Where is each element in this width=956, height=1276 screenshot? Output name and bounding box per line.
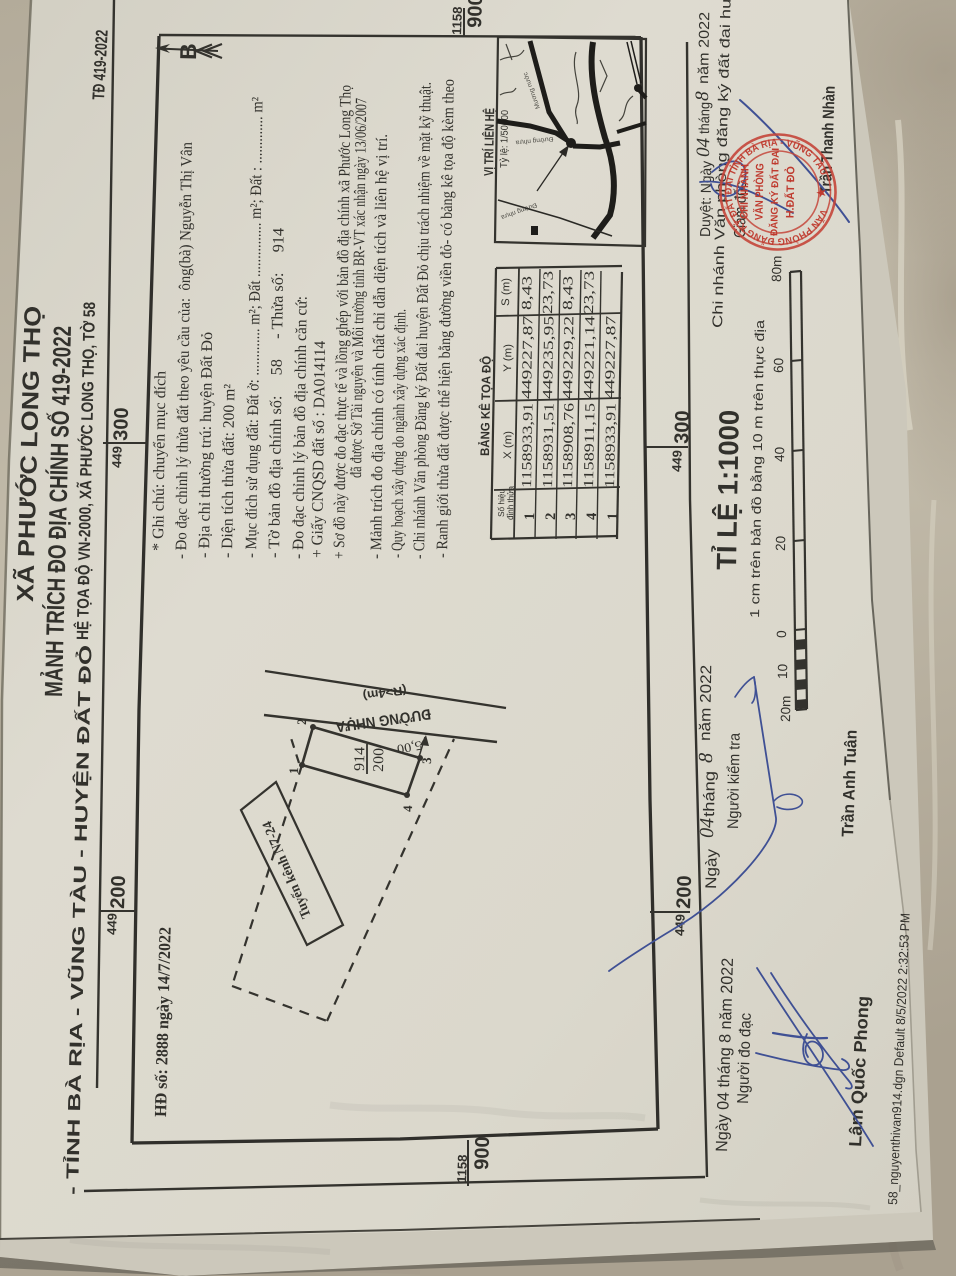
svg-text:449: 449	[669, 450, 685, 472]
svg-text:1158908,76: 1158908,76	[561, 403, 577, 488]
svg-text:★: ★	[816, 188, 828, 198]
svg-text:0: 0	[774, 630, 789, 638]
svg-text:TỈ LỆ 1:1000: TỈ LỆ 1:1000	[710, 410, 745, 571]
svg-text:1158933,91: 1158933,91	[520, 403, 536, 488]
svg-text:tháng: tháng	[701, 771, 719, 817]
svg-text:449: 449	[109, 446, 125, 468]
svg-text:60: 60	[771, 358, 786, 373]
svg-text:4: 4	[400, 805, 415, 812]
svg-text:449227,87: 449227,87	[520, 316, 536, 399]
svg-text:8: 8	[692, 91, 713, 101]
svg-text:CHI NHÁNH: CHI NHÁNH	[738, 164, 752, 219]
svg-text:tháng: tháng	[697, 102, 714, 134]
svg-text:H.ĐẤT ĐỎ: H.ĐẤT ĐỎ	[784, 166, 798, 219]
svg-text:8: 8	[695, 753, 717, 763]
svg-text:04: 04	[693, 137, 714, 157]
svg-text:X (m): X (m)	[502, 431, 514, 459]
svg-text:900: 900	[471, 1136, 494, 1170]
svg-text:914: 914	[352, 746, 368, 771]
svg-text:1158931,51: 1158931,51	[541, 403, 557, 488]
svg-text:- Diện tích thửa đất: 200 m²: - Diện tích thửa đất: 200 m²	[219, 384, 238, 558]
svg-text:8,43: 8,43	[520, 276, 536, 310]
svg-text:23,73: 23,73	[541, 271, 557, 314]
svg-text:+ Giấy CNQSD đất số : DA014114: + Giấy CNQSD đất số : DA014114	[309, 341, 329, 558]
svg-text:900: 900	[464, 0, 487, 28]
svg-text:1158: 1158	[449, 6, 465, 35]
svg-text:449: 449	[104, 913, 120, 935]
svg-text:8,43: 8,43	[561, 276, 577, 310]
svg-text:1158: 1158	[454, 1154, 470, 1183]
svg-text:năm 2022: năm 2022	[697, 665, 715, 741]
svg-text:200: 200	[371, 748, 387, 772]
svg-text:2: 2	[543, 513, 559, 521]
svg-text:Ngày: Ngày	[703, 849, 721, 890]
svg-text:năm 2022: năm 2022	[696, 12, 713, 84]
svg-text:10: 10	[775, 664, 790, 679]
svg-text:4: 4	[584, 513, 600, 521]
svg-text:B: B	[175, 43, 201, 60]
svg-text:20m: 20m	[778, 696, 793, 723]
svg-text:449227,87: 449227,87	[603, 316, 619, 399]
svg-text:* Ghi chú: chuyển mục đích: * Ghi chú: chuyển mục đích	[150, 371, 170, 551]
svg-text:Người kiểm tra: Người kiểm tra	[725, 732, 744, 829]
svg-text:1158933,91: 1158933,91	[603, 403, 619, 488]
svg-text:TĐ 419-2022: TĐ 419-2022	[89, 29, 112, 100]
svg-text:1158911,15: 1158911,15	[582, 403, 598, 488]
svg-text:300: 300	[671, 410, 694, 444]
svg-text:200: 200	[673, 875, 696, 909]
svg-text:449235,95: 449235,95	[541, 316, 557, 399]
svg-text:Y (m): Y (m)	[502, 344, 514, 372]
svg-text:- Địa chỉ thường trú: huyện Đấ: - Địa chỉ thường trú: huyện Đất Đỏ	[196, 332, 216, 558]
svg-text:Trần Anh Tuân: Trần Anh Tuân	[839, 730, 861, 838]
svg-text:20: 20	[773, 536, 788, 551]
svg-text:- Quy hoạch xây dựng do ngành: - Quy hoạch xây dựng do ngành xây dựng x…	[389, 309, 409, 558]
svg-text:04: 04	[696, 818, 718, 838]
svg-text:80m: 80m	[769, 256, 784, 283]
svg-text:đỉnh thửa: đỉnh thửa	[505, 486, 516, 520]
svg-text:449221,14: 449221,14	[582, 316, 598, 399]
svg-text:300: 300	[110, 407, 133, 441]
svg-text:Người đo đạc: Người đo đạc	[735, 1013, 755, 1104]
svg-text:3: 3	[563, 513, 579, 521]
svg-text:1: 1	[522, 513, 538, 521]
svg-text:200: 200	[107, 875, 130, 909]
svg-text:2: 2	[294, 718, 309, 725]
svg-text:VỊ TRÍ LIÊN HỆ: VỊ TRÍ LIÊN HỆ	[481, 108, 497, 176]
svg-text:S (m): S (m)	[500, 278, 512, 306]
svg-text:3: 3	[419, 757, 434, 764]
svg-text:449229,22: 449229,22	[561, 316, 577, 399]
svg-text:BẢNG KÊ TỌA ĐỘ: BẢNG KÊ TỌA ĐỘ	[477, 356, 494, 456]
svg-text:VĂN PHÒNG: VĂN PHÒNG	[753, 163, 767, 220]
svg-text:40: 40	[772, 447, 787, 462]
svg-text:1: 1	[605, 513, 621, 521]
svg-text:Tỷ lệ: 1/50000: Tỷ lệ: 1/50000	[498, 109, 511, 168]
svg-text:23,73: 23,73	[582, 271, 598, 314]
